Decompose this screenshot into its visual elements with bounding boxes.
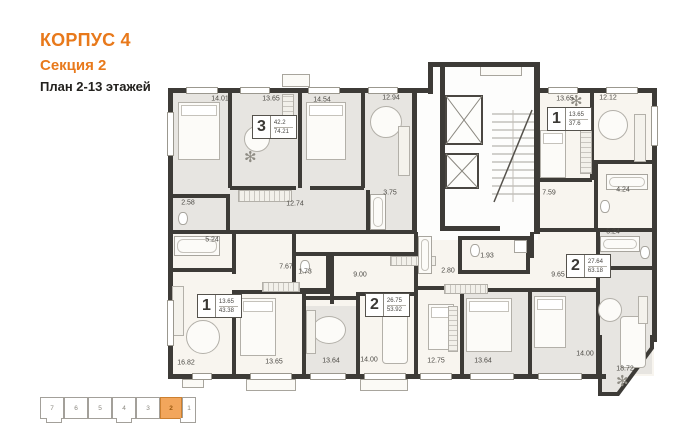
wall [532, 288, 598, 292]
apartment-total-area: 37.6 [569, 120, 588, 127]
room-area-label: 2.58 [181, 200, 195, 207]
room-area-label: 14.54 [313, 97, 331, 104]
apartment-total-area: 63.18 [588, 267, 607, 274]
balcony [360, 379, 408, 391]
wall [458, 236, 462, 274]
window [192, 373, 212, 380]
room-area-label: 7.59 [542, 190, 556, 197]
table-icon [312, 316, 346, 344]
window [420, 373, 452, 380]
wall [596, 270, 600, 376]
room-area-label: 5.24 [205, 237, 219, 244]
window [240, 87, 270, 94]
bed-icon [540, 130, 566, 178]
room-area-label: 3.75 [383, 190, 397, 197]
window [186, 87, 218, 94]
plant-icon: ✻ [244, 150, 258, 164]
window [364, 373, 406, 380]
apartment-badge: 227.6463.18 [566, 254, 611, 278]
washer-icon [514, 240, 527, 253]
balcony [246, 379, 296, 391]
apartment-badge: 113.6537.6 [547, 107, 592, 131]
wall [294, 252, 330, 256]
building-title: КОРПУС 4 [40, 30, 151, 51]
section-nav-item-1[interactable]: 1 [182, 397, 196, 419]
wall [232, 232, 236, 274]
room-area-label: 13.64 [474, 358, 492, 365]
bed-icon [178, 102, 220, 160]
page-header: КОРПУС 4 Секция 2 План 2-13 этажей [40, 30, 151, 94]
wall [361, 92, 365, 188]
apartment-areas: 13.6543.38 [215, 295, 241, 317]
room-area-label: 13.65 [556, 96, 574, 103]
apartment-living-area: 26.75 [387, 298, 406, 306]
window [368, 87, 398, 94]
room-area-label: 9.00 [353, 272, 367, 279]
elevator-shaft-icon [444, 94, 486, 194]
apartment-rooms-count: 1 [198, 295, 215, 317]
apartment-rooms-count: 2 [366, 294, 383, 316]
apartment-badge: 226.7553.92 [365, 293, 410, 317]
window [470, 373, 514, 380]
room-area-label: 13.65 [262, 96, 280, 103]
room-area-label: 12.75 [427, 358, 445, 365]
apartment-areas: 27.6463.18 [584, 255, 610, 277]
wc-icon [178, 212, 188, 225]
room-area-label: 1.93 [480, 253, 494, 260]
section-nav-item-7[interactable]: 7 [40, 397, 64, 419]
wall [168, 194, 228, 198]
wall [536, 178, 592, 182]
wall [298, 92, 302, 188]
room-area-label: 2.80 [441, 268, 455, 275]
wardrobe-icon [262, 282, 300, 292]
wall [440, 226, 500, 231]
counter-icon [398, 126, 410, 176]
section-nav-item-5[interactable]: 5 [88, 397, 112, 419]
section-nav-item-3[interactable]: 3 [136, 397, 160, 419]
bed-icon [534, 296, 566, 348]
wall [302, 296, 360, 300]
wall [462, 270, 528, 274]
window [538, 373, 582, 380]
room-area-label: 12.94 [382, 95, 400, 102]
counter-icon [306, 310, 316, 354]
wall [168, 268, 232, 272]
wall [594, 164, 598, 232]
apartment-total-area: 74.21 [274, 128, 293, 135]
apartment-living-area: 13.65 [569, 112, 588, 120]
balcony [282, 74, 310, 87]
room-area-label: 7.67 [279, 264, 293, 271]
wardrobe-icon [444, 284, 488, 294]
floor-plan-page: КОРПУС 4 Секция 2 План 2-13 этажей ✻✻✻14… [0, 0, 700, 446]
wall [528, 292, 532, 376]
room-area-label: 14.00 [576, 351, 594, 358]
wall [228, 92, 232, 188]
window [606, 87, 638, 94]
table-icon [598, 298, 622, 322]
room-area-label: 14.01 [211, 96, 229, 103]
section-nav-item-4[interactable]: 4 [112, 397, 136, 419]
minimap-notch [46, 418, 62, 423]
minimap-notch [116, 418, 132, 423]
wall [414, 290, 418, 376]
wall [460, 292, 464, 376]
balcony [182, 379, 204, 388]
plant-icon: ✻ [616, 374, 636, 394]
table-icon [598, 110, 628, 140]
room-area-label: 5.24 [606, 229, 620, 236]
wall [168, 230, 414, 234]
window [167, 300, 174, 346]
room-area-label: 13.65 [265, 359, 283, 366]
apartment-areas: 42.274.21 [270, 116, 296, 138]
apartment-badge: 342.274.21 [252, 115, 297, 139]
apartment-rooms-count: 3 [253, 116, 270, 138]
section-nav: 7654321 [40, 397, 200, 425]
apartment-badge: 113.6543.38 [197, 294, 242, 318]
section-title: Секция 2 [40, 57, 151, 74]
apartment-rooms-count: 1 [548, 108, 565, 130]
window [250, 373, 292, 380]
wall [226, 194, 230, 232]
tub-icon [370, 194, 386, 230]
bed-icon [306, 102, 346, 160]
window [308, 87, 340, 94]
room-area-label: 4.24 [616, 187, 630, 194]
section-nav-item-2[interactable]: 2 [160, 397, 182, 419]
wardrobe-icon [238, 190, 292, 202]
apartment-rooms-count: 2 [567, 255, 584, 277]
wc-icon [470, 244, 480, 257]
wc-icon [600, 200, 610, 213]
window [167, 112, 174, 156]
apartment-living-area: 42.2 [274, 120, 293, 128]
wall [310, 186, 364, 190]
counter-icon [638, 296, 648, 324]
apartment-living-area: 27.64 [588, 259, 607, 267]
wall [428, 62, 433, 94]
table-icon [186, 320, 220, 354]
room-area-label: 13.64 [322, 358, 340, 365]
tub-icon [418, 236, 432, 274]
wardrobe-v-icon [448, 306, 458, 352]
apartment-total-area: 53.92 [387, 306, 406, 313]
section-nav-item-6[interactable]: 6 [64, 397, 88, 419]
apartment-areas: 26.7553.92 [383, 294, 409, 316]
stairs-icon [490, 106, 536, 206]
balcony [480, 66, 522, 76]
counter-icon [634, 114, 646, 162]
wc-icon [640, 246, 650, 259]
wall [530, 232, 534, 258]
window [548, 87, 578, 94]
room-area-label: 14.00 [360, 357, 378, 364]
window [310, 373, 346, 380]
room-area-label: 12.74 [286, 201, 304, 208]
room-area-label: 12.12 [599, 95, 617, 102]
room-area-label: 1.73 [298, 269, 312, 276]
plan-title: План 2-13 этажей [40, 79, 151, 94]
room-area-label: 18.72 [616, 366, 634, 373]
bed-icon [466, 298, 512, 352]
apartment-areas: 13.6537.6 [565, 108, 591, 130]
room-area-label: 16.82 [177, 360, 195, 367]
room-area-label: 9.65 [551, 272, 565, 279]
tub-icon [600, 236, 640, 252]
wall [412, 92, 417, 234]
minimap-notch [180, 418, 196, 423]
apartment-total-area: 43.38 [219, 307, 238, 314]
apartment-living-area: 13.65 [219, 299, 238, 307]
bed-icon [240, 298, 276, 356]
window [651, 106, 658, 146]
